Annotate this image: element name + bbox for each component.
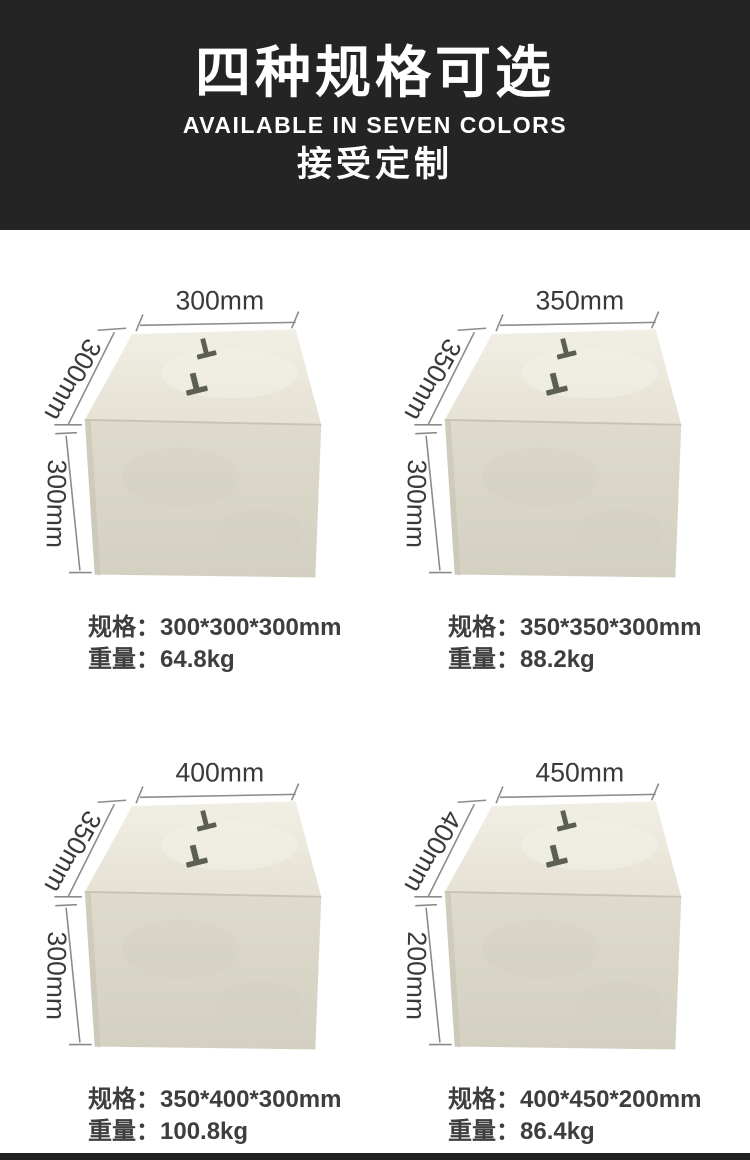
concrete-texture [215,982,304,1025]
dim-tick [292,784,299,801]
dim-tick [55,905,77,906]
dim-tick [136,314,143,331]
dimension-top-label: 450mm [535,758,624,788]
dim-tick [496,786,503,803]
dim-line-top [500,794,656,797]
spec-weight-value: 64.8kg [160,646,235,673]
spec-size-value: 300*300*300mm [160,614,342,641]
product-grid: 300mm 300mm 300mm 规格：300*300*300mm 重量：64… [0,230,750,1148]
dim-tick [496,314,503,331]
spec-weight-label: 重量： [88,646,160,673]
header-banner: 四种规格可选 AVAILABLE IN SEVEN COLORS 接受定制 [0,0,750,230]
dim-line-top [500,322,656,325]
spec-weight-label: 重量： [448,1118,520,1145]
block-diagram: 300mm 300mm 300mm [30,280,380,610]
spec-row-size: 规格：300*300*300mm [88,612,380,644]
product-card: 450mm 400mm 200mm 规格：400*450*200mm 重量：86… [390,752,740,1148]
spec-row-size: 规格：350*400*300mm [88,1084,380,1116]
dim-line-top [140,322,296,325]
dim-tick [98,800,127,802]
spec-row-weight: 重量：88.2kg [448,644,740,676]
spec-size-label: 规格： [448,1086,520,1113]
dim-tick [652,312,659,329]
dim-tick [136,786,143,803]
block-diagram: 400mm 350mm 300mm [30,752,380,1082]
spec-size-value: 350*400*300mm [160,1086,342,1113]
dimension-height-label: 300mm [41,931,73,1020]
dimension-height-label: 300mm [401,459,433,548]
spec-row-weight: 重量：86.4kg [448,1116,740,1148]
header-subtitle: AVAILABLE IN SEVEN COLORS [0,113,750,137]
concrete-texture [521,349,659,398]
concrete-block-photo [445,329,681,577]
spec-row-size: 规格：400*450*200mm [448,1084,740,1116]
spec-size-value: 350*350*300mm [520,614,702,641]
concrete-texture [161,349,299,398]
concrete-texture [575,510,664,553]
dimension-top-label: 300mm [175,286,264,316]
dimension-height-label: 200mm [401,931,433,1020]
dimension-top-label: 350mm [535,286,624,316]
dimension-top-label: 400mm [175,758,264,788]
product-card: 350mm 350mm 300mm 规格：350*350*300mm 重量：88… [390,280,740,676]
spec-block: 规格：350*350*300mm 重量：88.2kg [390,612,740,676]
footer-strip [0,1153,750,1160]
spec-weight-label: 重量： [88,1118,160,1145]
concrete-texture [521,821,659,870]
spec-size-label: 规格： [88,614,160,641]
dim-line-top [140,794,296,797]
spec-size-value: 400*450*200mm [520,1086,702,1113]
concrete-texture [121,447,239,506]
spec-weight-value: 100.8kg [160,1118,248,1145]
spec-weight-label: 重量： [448,646,520,673]
product-card: 300mm 300mm 300mm 规格：300*300*300mm 重量：64… [30,280,380,676]
concrete-block-photo [85,329,321,577]
block-diagram: 350mm 350mm 300mm [390,280,740,610]
dim-tick [292,312,299,329]
dim-tick [652,784,659,801]
spec-row-weight: 重量：64.8kg [88,644,380,676]
spec-block: 规格：350*400*300mm 重量：100.8kg [30,1084,380,1148]
concrete-texture [161,821,299,870]
concrete-texture [481,919,599,978]
dim-tick [458,328,487,330]
dimension-height-label: 300mm [41,459,73,548]
dim-tick [55,433,77,434]
concrete-block-photo [445,801,681,1049]
block-diagram: 450mm 400mm 200mm [390,752,740,1082]
concrete-texture [481,447,599,506]
concrete-texture [575,982,664,1025]
dim-tick [415,433,437,434]
spec-block: 规格：300*300*300mm 重量：64.8kg [30,612,380,676]
spec-weight-value: 88.2kg [520,646,595,673]
header-tagline: 接受定制 [0,146,750,183]
concrete-block-photo [85,801,321,1049]
spec-weight-value: 86.4kg [520,1118,595,1145]
spec-row-size: 规格：350*350*300mm [448,612,740,644]
product-card: 400mm 350mm 300mm 规格：350*400*300mm 重量：10… [30,752,380,1148]
page-title: 四种规格可选 [0,44,750,102]
concrete-texture [121,919,239,978]
dim-tick [458,800,487,802]
spec-size-label: 规格： [448,614,520,641]
spec-size-label: 规格： [88,1086,160,1113]
dim-tick [98,328,127,330]
spec-row-weight: 重量：100.8kg [88,1116,380,1148]
concrete-texture [215,510,304,553]
spec-block: 规格：400*450*200mm 重量：86.4kg [390,1084,740,1148]
dim-tick [415,905,437,906]
